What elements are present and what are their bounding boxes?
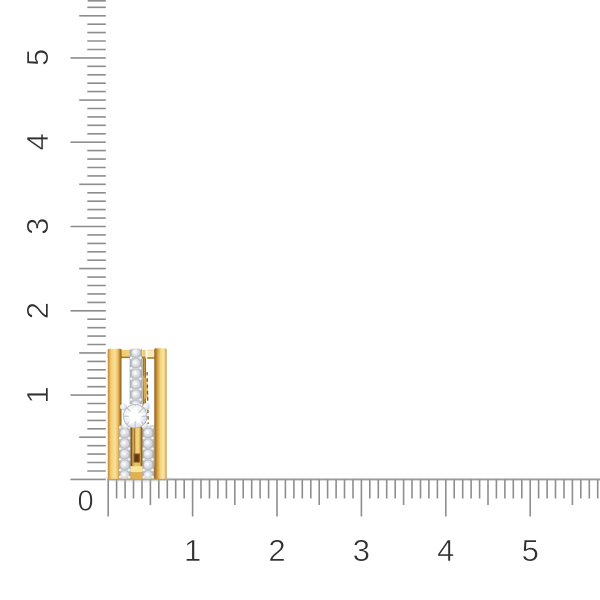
svg-text:0: 0 — [78, 485, 94, 517]
svg-text:5: 5 — [20, 49, 55, 66]
svg-text:2: 2 — [20, 302, 55, 319]
svg-text:3: 3 — [353, 533, 370, 568]
svg-text:1: 1 — [184, 533, 201, 568]
svg-text:4: 4 — [437, 533, 454, 568]
svg-text:4: 4 — [20, 133, 55, 150]
svg-text:2: 2 — [268, 533, 285, 568]
svg-text:3: 3 — [20, 218, 55, 235]
svg-text:1: 1 — [20, 386, 55, 403]
svg-text:5: 5 — [522, 533, 539, 568]
